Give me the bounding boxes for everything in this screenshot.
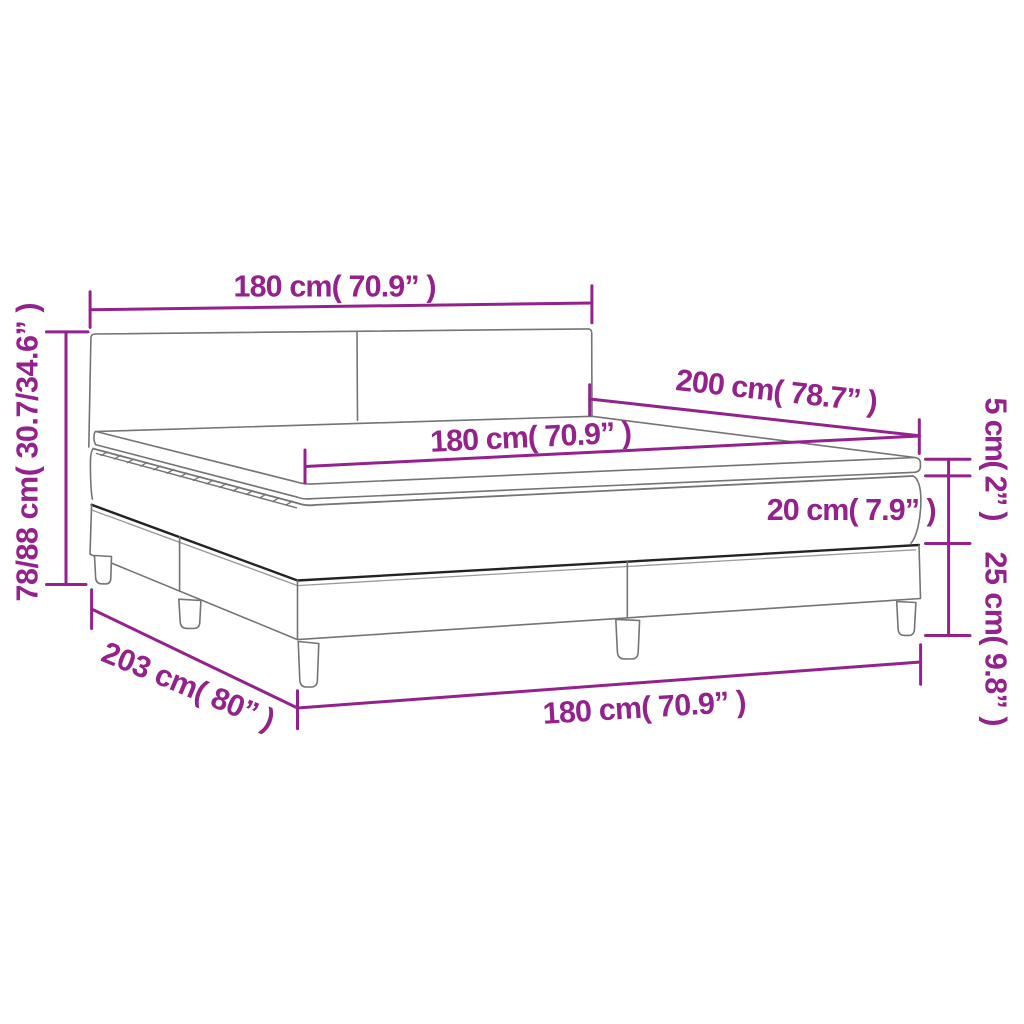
svg-text:180 cm( 70.9” ): 180 cm( 70.9” ): [234, 269, 437, 303]
svg-text:78/88 cm( 30.7/34.6” ): 78/88 cm( 30.7/34.6” ): [11, 303, 45, 602]
svg-text:20 cm( 7.9” ): 20 cm( 7.9” ): [767, 493, 937, 527]
svg-text:5 cm( 2” ): 5 cm( 2” ): [979, 398, 1013, 522]
svg-text:25 cm( 9.8” ): 25 cm( 9.8” ): [979, 552, 1013, 727]
